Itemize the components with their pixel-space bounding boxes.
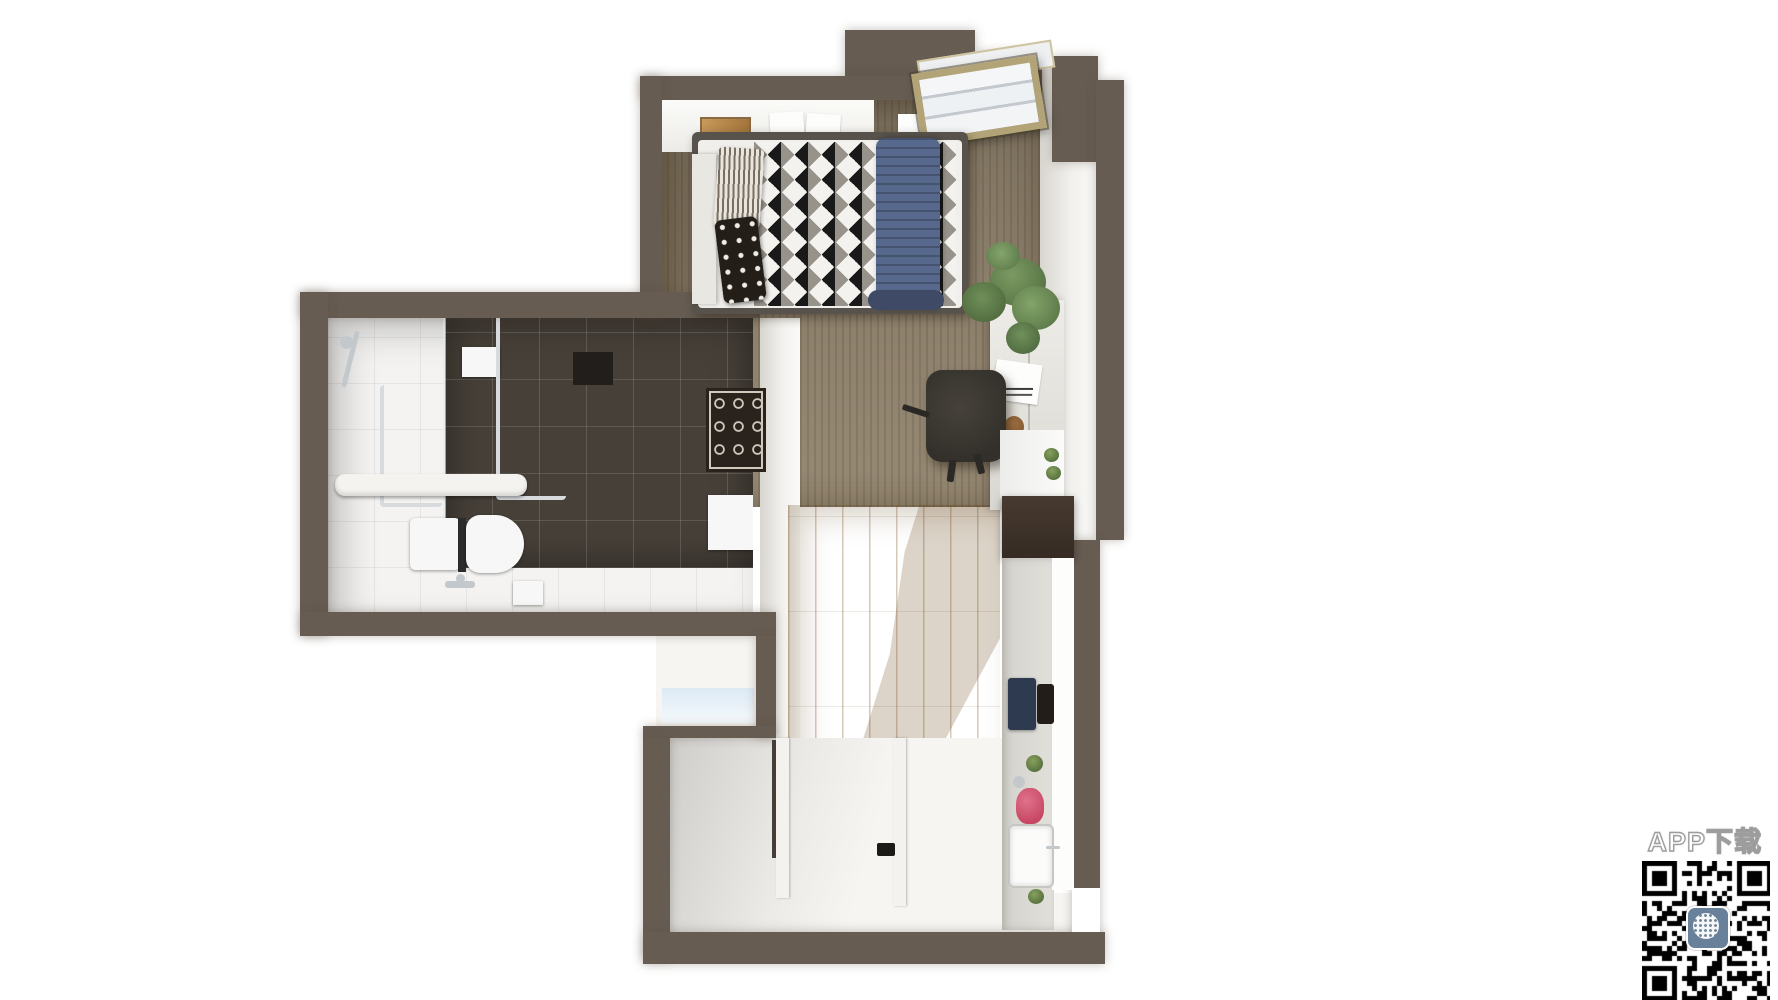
wall-skylight-right: [1052, 56, 1098, 162]
kitchen-sink: [1008, 824, 1054, 888]
shower-head: [340, 336, 353, 349]
toilet-tank: [410, 518, 460, 570]
kitchen-dark-cabinet: [1002, 496, 1074, 558]
wall-entry-step: [643, 726, 776, 738]
shelf-plant: [1046, 466, 1061, 480]
pink-kettle: [1016, 788, 1044, 824]
wall-right-upper: [1096, 80, 1124, 540]
wall-bottom-right-notch: [1072, 888, 1100, 932]
glass-partition: [443, 318, 446, 530]
alcove-window-light: [662, 688, 754, 724]
app-download-label: APP下载: [1647, 820, 1762, 859]
toilet-seat-hinge: [458, 518, 466, 572]
cooktop: [1008, 678, 1036, 730]
floor-faucet-knob: [456, 574, 465, 583]
shelf-plant: [1044, 448, 1059, 462]
wall-right-lower: [1072, 540, 1100, 940]
wall-left-lower: [643, 738, 670, 960]
cooking-pot: [1037, 684, 1054, 724]
floorplan-render: APP下载: [0, 0, 1778, 1000]
wall-bath-right-drop: [756, 636, 776, 738]
entry-floor-shadow: [668, 738, 1002, 935]
soap-dispenser-box: [462, 347, 500, 377]
doorstop: [877, 843, 895, 856]
bathroom-mirror-niche: [573, 352, 613, 385]
herb-pot: [1028, 889, 1044, 904]
bed: [692, 132, 968, 314]
fridge-wall-band: [1052, 558, 1074, 890]
qr-code: [1642, 861, 1770, 1000]
app-icon: [1686, 906, 1730, 950]
bathroom: [328, 318, 753, 614]
toiletry-box: [513, 581, 543, 605]
sliding-door-track: [893, 738, 906, 906]
office-chair: [926, 370, 1006, 462]
wall-bathroom-left: [300, 292, 328, 636]
entry-floor: [668, 738, 1002, 935]
herb-pot: [1026, 755, 1043, 772]
kitchen-upper-shelf: [1000, 430, 1064, 498]
wall-bottom: [643, 932, 1105, 964]
towel-rail: [335, 474, 527, 496]
blue-blanket: [876, 138, 940, 308]
wall-bathroom-top: [300, 292, 760, 318]
sliding-door-track: [776, 738, 789, 898]
toilet-bowl: [466, 515, 524, 573]
blanket-fold: [868, 290, 944, 310]
bath-ledge: [708, 495, 753, 550]
headboard-bench: [692, 154, 716, 304]
kitchen-faucet: [1013, 776, 1025, 788]
wall-bedroom-left: [640, 76, 662, 318]
chrome-pipe-frame: [496, 318, 566, 500]
bath-mat-rug: [706, 388, 766, 472]
app-logo-globe-icon: [1693, 913, 1719, 939]
sink-faucet: [1046, 846, 1060, 849]
wall-bathroom-bottom: [300, 612, 776, 636]
